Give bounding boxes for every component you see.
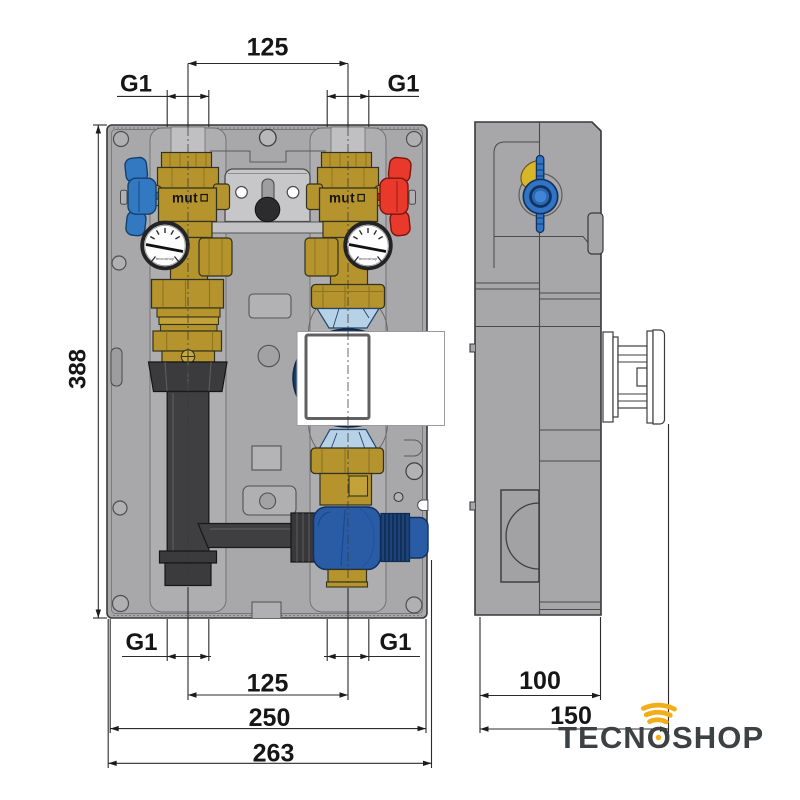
svg-text:tecnoshop: tecnoshop [359, 256, 378, 261]
svg-text:TECNOSHOP: TECNOSHOP [558, 720, 764, 755]
svg-text:mut: mut [172, 191, 198, 206]
svg-text:125: 125 [247, 670, 289, 698]
svg-text:G1: G1 [125, 629, 157, 656]
svg-text:388: 388 [65, 349, 92, 389]
svg-text:263: 263 [253, 740, 295, 768]
svg-text:G1: G1 [379, 629, 411, 656]
svg-text:tecnoshop: tecnoshop [156, 256, 175, 261]
svg-text:125: 125 [247, 34, 289, 62]
svg-text:100: 100 [519, 667, 561, 695]
svg-text:250: 250 [249, 704, 291, 732]
svg-text:mut: mut [329, 191, 355, 206]
svg-text:G1: G1 [387, 71, 419, 98]
svg-text:G1: G1 [120, 71, 152, 98]
